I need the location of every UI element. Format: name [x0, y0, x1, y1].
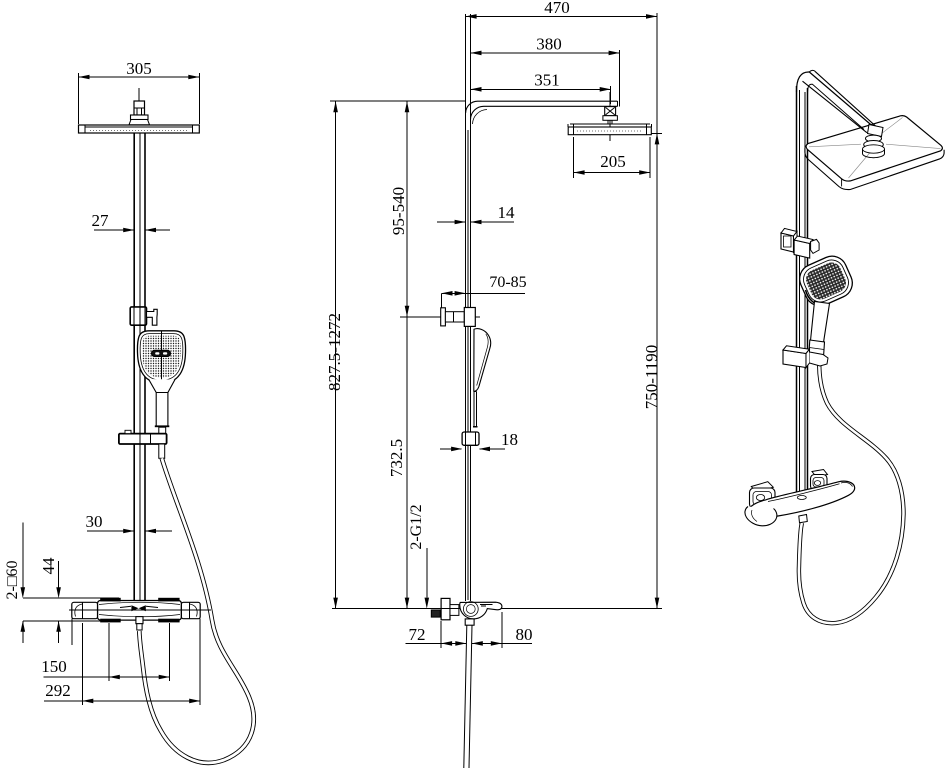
- svg-text:95-540: 95-540: [389, 187, 408, 235]
- svg-text:732.5: 732.5: [387, 439, 406, 477]
- svg-text:72: 72: [409, 625, 426, 644]
- svg-text:380: 380: [536, 35, 562, 54]
- svg-text:30: 30: [86, 512, 103, 531]
- svg-text:351: 351: [534, 71, 560, 90]
- svg-text:18: 18: [501, 430, 518, 449]
- svg-text:14: 14: [498, 203, 516, 222]
- svg-text:470: 470: [544, 0, 570, 17]
- svg-text:2-□60: 2-□60: [4, 561, 21, 600]
- svg-text:70-85: 70-85: [489, 274, 526, 291]
- svg-text:44: 44: [39, 557, 58, 575]
- svg-text:2-G1/2: 2-G1/2: [408, 504, 425, 549]
- svg-text:150: 150: [41, 657, 67, 676]
- svg-text:80: 80: [516, 625, 533, 644]
- svg-text:827.5-1272: 827.5-1272: [325, 313, 344, 391]
- svg-text:750-1190: 750-1190: [642, 345, 661, 410]
- svg-text:205: 205: [600, 152, 626, 171]
- svg-text:292: 292: [45, 681, 71, 700]
- svg-text:27: 27: [92, 211, 110, 230]
- svg-text:305: 305: [126, 59, 152, 78]
